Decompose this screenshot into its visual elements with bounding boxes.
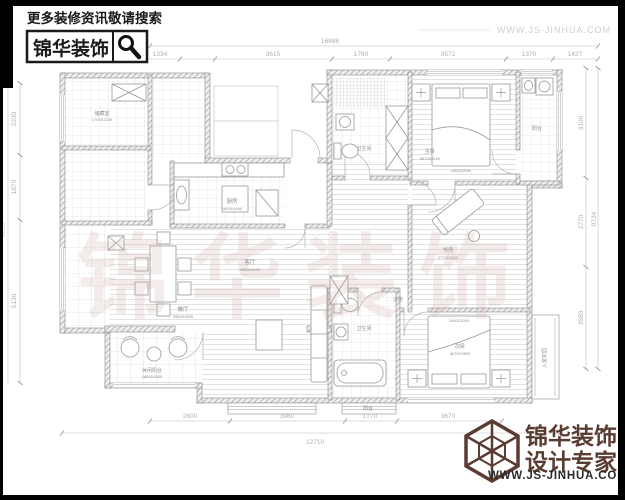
- dim-right-seg: 3100: [578, 115, 585, 130]
- dim-top-total: 16888: [321, 38, 339, 45]
- company-name: 锦华装饰: [525, 423, 617, 449]
- room-size: 3670X2800: [450, 351, 471, 356]
- floor-plan-image: 16888 3810 1334 3615 1760 3572 1370 1427…: [0, 0, 625, 500]
- room-label-master: 主卧: [424, 147, 436, 155]
- dim-bottom-seg: 1770: [363, 413, 378, 420]
- room-size: 3572X3100: [420, 156, 441, 161]
- room-label-storage: 储藏室: [94, 110, 109, 117]
- watermark-text: 锦华装饰: [77, 228, 533, 330]
- search-hint-text: 更多装修资讯敬请搜索: [27, 10, 162, 26]
- dim-left-seg: 5130: [11, 293, 18, 308]
- dim-top-seg: 1370: [522, 51, 537, 58]
- dim-bottom-seg: 2800: [183, 413, 198, 420]
- room-label-balcony-sw: 休闲阳台: [142, 367, 162, 374]
- search-brand-text: 锦华装饰: [33, 37, 109, 60]
- dim-bottom-seg: 3980: [280, 413, 295, 420]
- room-label-bedroom2: 次卧: [454, 342, 466, 350]
- dim-right-seg: 2770: [578, 214, 585, 229]
- dim-left-seg: 2230: [11, 111, 18, 126]
- dim-bottom-seg: 3670: [441, 413, 456, 420]
- dim-left-seg: 1870: [11, 179, 18, 194]
- room-size: 1700X2230: [92, 117, 113, 122]
- dim-right-seg: 3580: [578, 310, 585, 325]
- top-right-url: WWW.JS-JINHUA.COM: [497, 25, 611, 35]
- dim-top-seg: 1334: [153, 51, 168, 58]
- room-label-balcony-s: 阳台: [363, 405, 373, 412]
- bed-size-master: 1800X2000: [451, 168, 472, 173]
- company-url: WWW.JS-JINHUA.COM: [488, 470, 625, 482]
- dim-right-total: 9734: [591, 211, 598, 226]
- dim-top-seg: 1760: [354, 51, 369, 58]
- dim-top-seg: 1427: [568, 51, 583, 58]
- room-size: 2800X1500: [142, 374, 163, 379]
- search-branding: 更多装修资讯敬请搜索 锦华装饰: [27, 10, 162, 62]
- room-label-kitchen: 厨房: [226, 197, 238, 205]
- dim-top-seg: 3615: [266, 51, 281, 58]
- floorplan-page: 16888 3810 1334 3615 1760 3572 1370 1427…: [0, 0, 625, 500]
- dim-top-seg: 3572: [441, 51, 456, 58]
- dim-bottom-total: 12710: [306, 439, 324, 446]
- room-label-garden: 入室花园: [541, 348, 548, 368]
- room-size: 2800X1650: [222, 206, 243, 211]
- room-label-bath1: 卫生间: [356, 145, 371, 152]
- room-label-balcony-ne: 阳台: [532, 125, 542, 132]
